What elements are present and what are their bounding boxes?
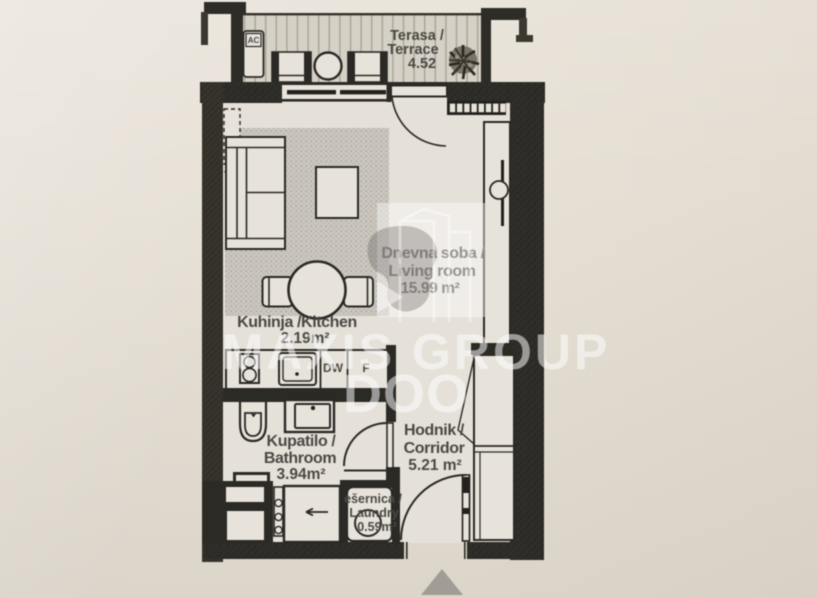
svg-text:0.59m²: 0.59m² bbox=[357, 520, 397, 534]
svg-text:3.94m²: 3.94m² bbox=[276, 466, 325, 483]
svg-text:Hodnik /: Hodnik / bbox=[404, 422, 465, 439]
svg-text:5.21 m²: 5.21 m² bbox=[408, 457, 461, 474]
svg-text:DOO: DOO bbox=[343, 364, 469, 424]
svg-text:Laundry: Laundry bbox=[349, 506, 398, 520]
svg-text:Corridor: Corridor bbox=[404, 440, 465, 457]
svg-text:Bathroom: Bathroom bbox=[264, 450, 337, 467]
svg-text:4.52: 4.52 bbox=[408, 56, 436, 72]
svg-text:ešernica /: ešernica / bbox=[344, 492, 402, 506]
svg-text:AC: AC bbox=[248, 36, 260, 45]
svg-text:Kupatilo /: Kupatilo / bbox=[267, 433, 337, 450]
